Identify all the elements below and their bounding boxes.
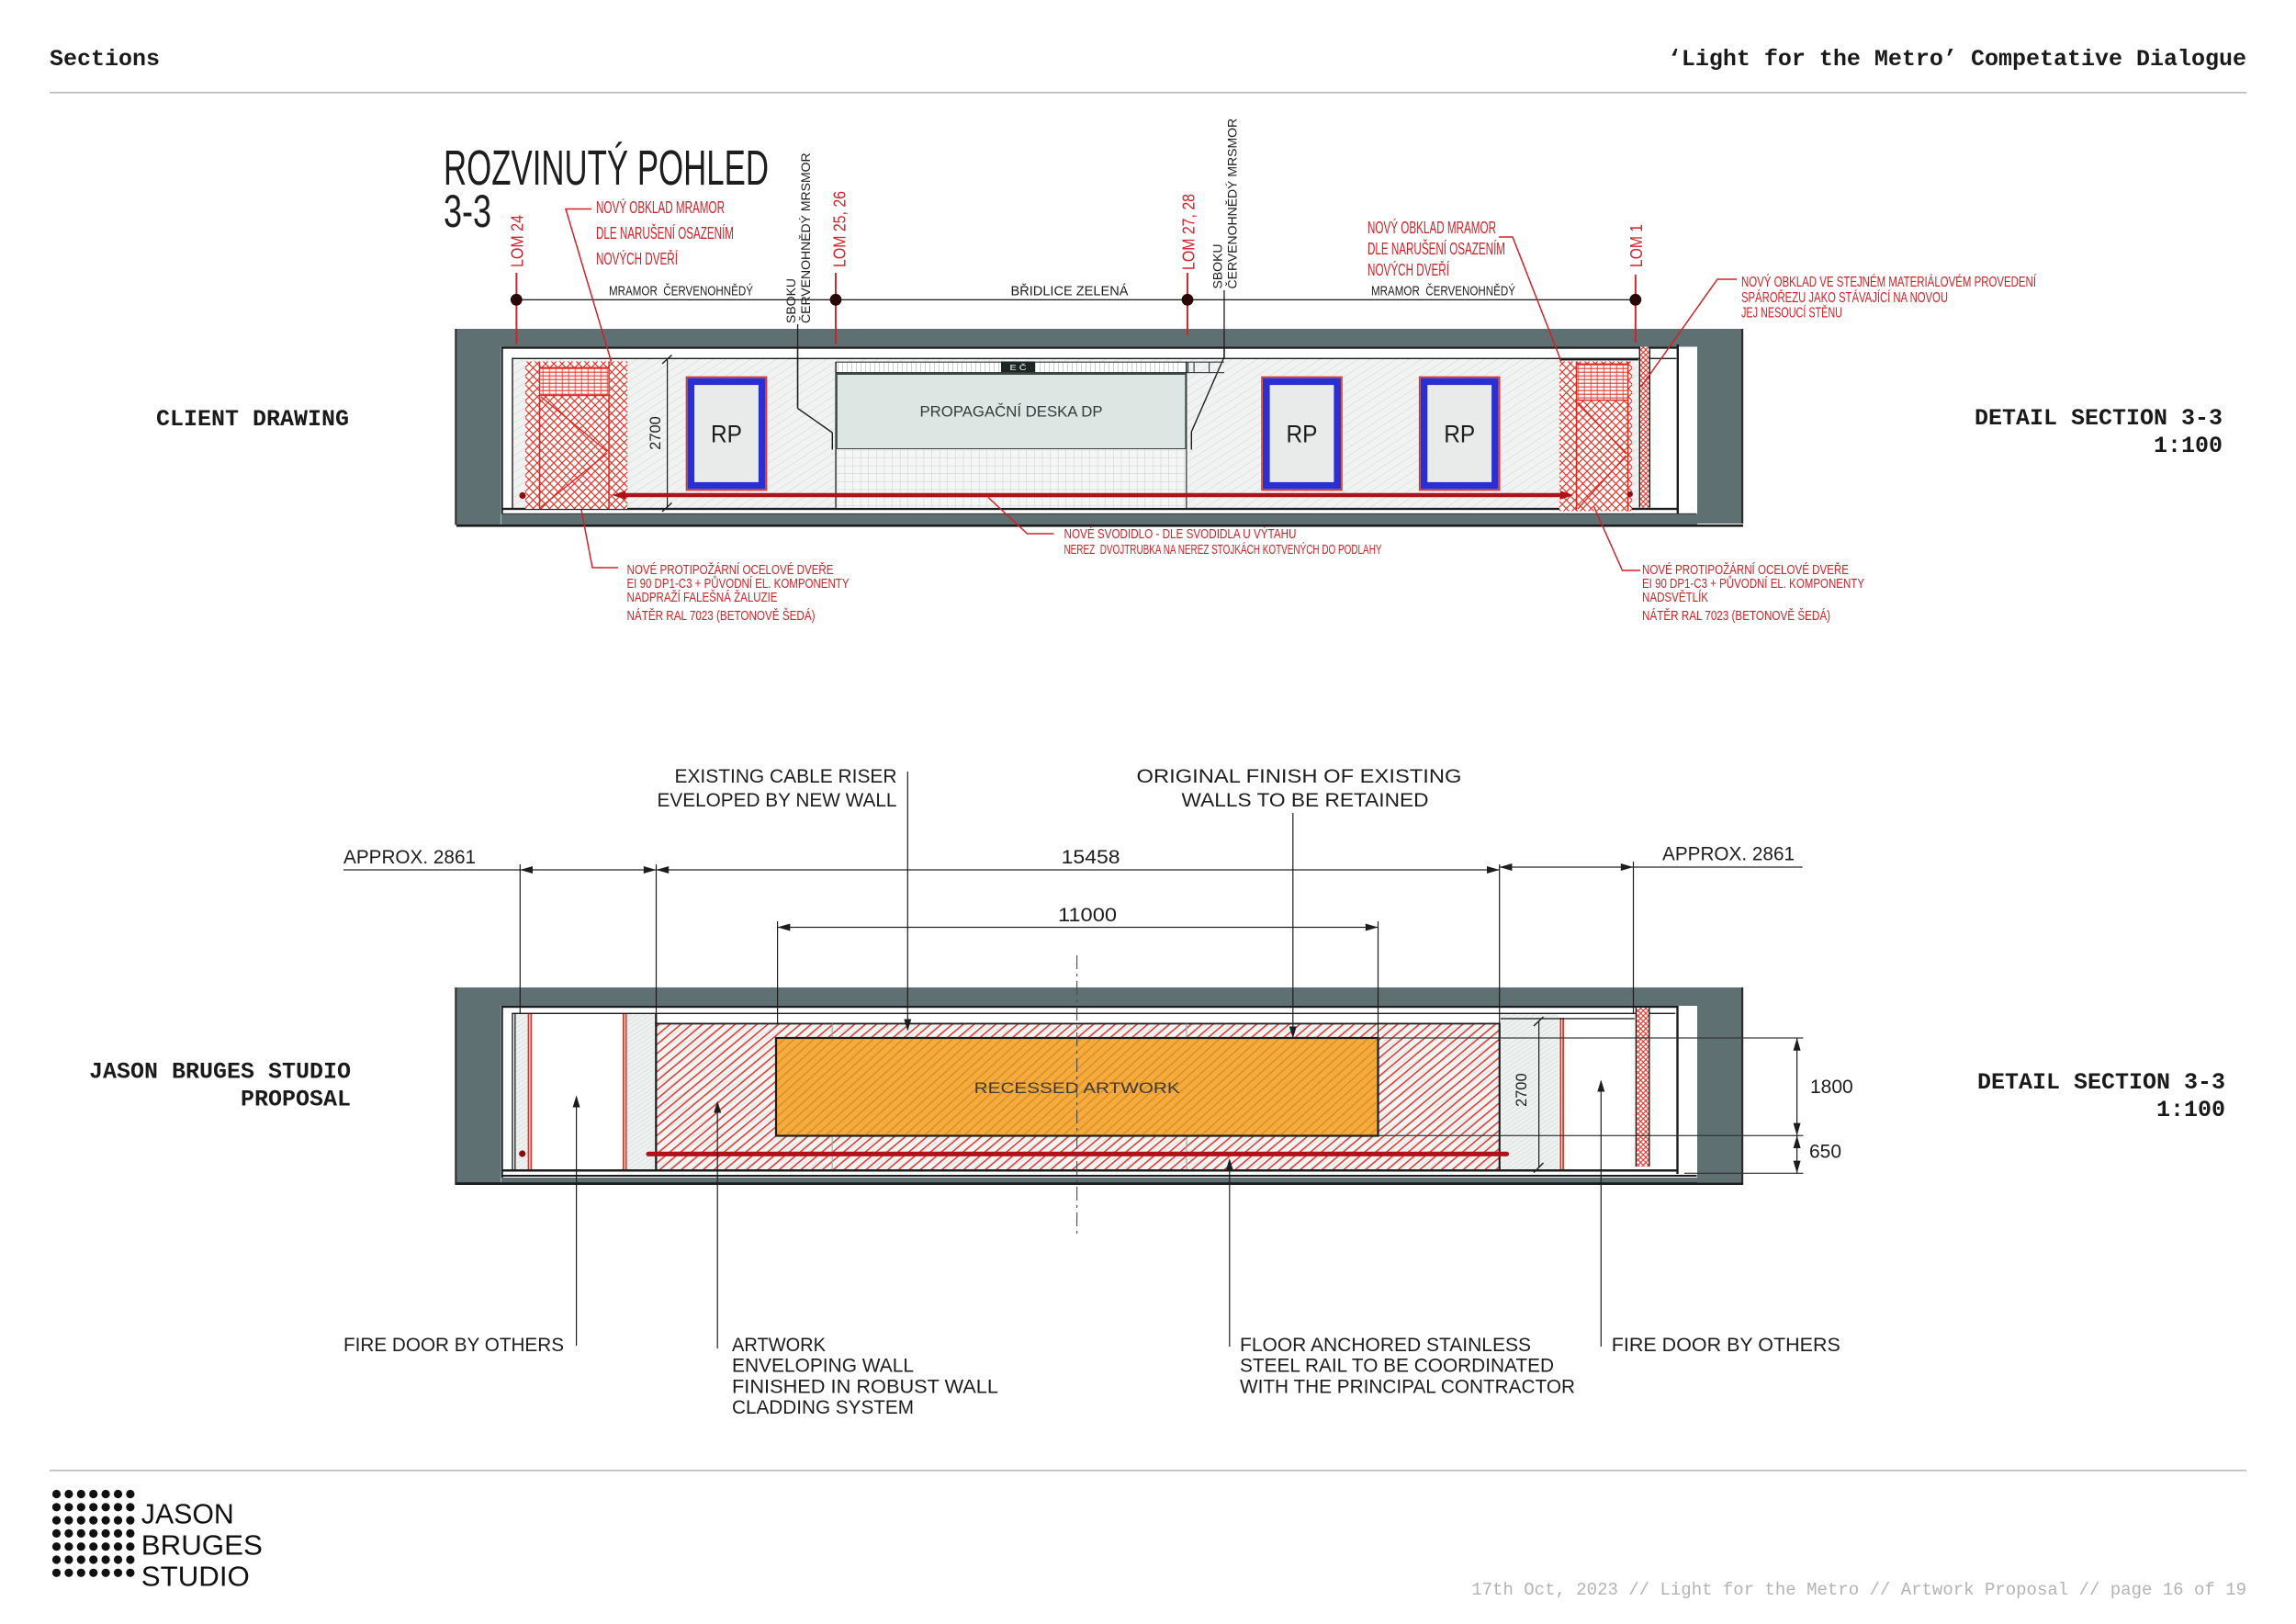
svg-text:NOVÝCH DVEŘÍ: NOVÝCH DVEŘÍ	[1367, 260, 1450, 279]
svg-text:LOM 27, 28: LOM 27, 28	[1179, 194, 1199, 270]
svg-text:NOVÝCH DVEŘÍ: NOVÝCH DVEŘÍ	[596, 249, 679, 268]
svg-text:DLE NARUŠENÍ OSAZENÍM: DLE NARUŠENÍ OSAZENÍM	[596, 223, 734, 242]
svg-text:FIRE DOOR BY OTHERS: FIRE DOOR BY OTHERS	[1612, 1335, 1840, 1356]
svg-text:15458: 15458	[1062, 847, 1120, 868]
svg-text:JASON BRUGES STUDIO: JASON BRUGES STUDIO	[89, 1059, 351, 1086]
svg-text:NOVÝ OBKLAD MRAMOR: NOVÝ OBKLAD MRAMOR	[1367, 218, 1496, 237]
svg-text:ORIGINAL FINISH OF EXISTING: ORIGINAL FINISH OF EXISTING	[1137, 766, 1462, 787]
svg-text:BŘIDLICE ZELENÁ: BŘIDLICE ZELENÁ	[1011, 284, 1129, 299]
svg-text:2700: 2700	[1514, 1073, 1530, 1107]
svg-text:CLADDING SYSTEM: CLADDING SYSTEM	[732, 1397, 914, 1418]
svg-text:RP: RP	[711, 421, 742, 448]
svg-text:2700: 2700	[647, 416, 664, 450]
svg-text:FINISHED IN ROBUST WALL: FINISHED IN ROBUST WALL	[732, 1376, 998, 1397]
svg-text:11000: 11000	[1058, 905, 1117, 926]
svg-text:650: 650	[1809, 1142, 1841, 1163]
svg-text:PROPAGAČNÍ DESKA DP: PROPAGAČNÍ DESKA DP	[920, 403, 1103, 421]
svg-text:NEREZ DVOJTRUBKA NA NEREZ STO: NEREZ DVOJTRUBKA NA NEREZ STOJKÁCH KOTVE…	[1064, 542, 1382, 558]
svg-text:NÁTĚR RAL 7023 (BETONOVĚ ŠEDÁ): NÁTĚR RAL 7023 (BETONOVĚ ŠEDÁ)	[627, 608, 816, 624]
svg-text:SPÁROŘEZU JAKO STÁVAJÍCÍ NA NO: SPÁROŘEZU JAKO STÁVAJÍCÍ NA NOVOU	[1741, 290, 1948, 306]
svg-text:Sections: Sections	[50, 46, 160, 73]
svg-text:DETAIL SECTION 3-3: DETAIL SECTION 3-3	[1977, 1069, 2225, 1096]
svg-text:FLOOR ANCHORED STAINLESS: FLOOR ANCHORED STAINLESS	[1240, 1335, 1531, 1356]
svg-text:1:100: 1:100	[2156, 1097, 2225, 1123]
svg-text:ARTWORK: ARTWORK	[732, 1335, 826, 1356]
svg-text:NOVÉ SVODIDLO - DLE SVODIDLA U: NOVÉ SVODIDLO - DLE SVODIDLA U VÝTAHU	[1064, 526, 1297, 542]
svg-text:NOVÉ PROTIPOŽÁRNÍ OCELOVÉ DVEŘ: NOVÉ PROTIPOŽÁRNÍ OCELOVÉ DVEŘE	[627, 562, 834, 578]
svg-text:RP: RP	[1444, 421, 1475, 448]
svg-text:STEEL RAIL TO BE COORDINATED: STEEL RAIL TO BE COORDINATED	[1240, 1356, 1554, 1377]
svg-text:ČERVENOHNĚDÝ MRSMOR: ČERVENOHNĚDÝ MRSMOR	[798, 152, 813, 323]
svg-text:3-3: 3-3	[444, 186, 491, 237]
svg-text:PROPOSAL: PROPOSAL	[241, 1087, 351, 1113]
svg-text:JASON: JASON	[141, 1498, 234, 1530]
svg-text:FIRE DOOR BY OTHERS: FIRE DOOR BY OTHERS	[343, 1335, 564, 1356]
svg-text:SBOKU: SBOKU	[1210, 243, 1225, 288]
svg-text:APPROX. 2861: APPROX. 2861	[343, 847, 476, 868]
svg-text:EI 90 DP1-C3 + PŮVODNÍ EL. KOM: EI 90 DP1-C3 + PŮVODNÍ EL. KOMPONENTY	[627, 575, 850, 592]
svg-text:ENVELOPING WALL: ENVELOPING WALL	[732, 1356, 914, 1377]
svg-text:LOM 1: LOM 1	[1626, 224, 1646, 267]
svg-text:ROZVINUTÝ POHLED: ROZVINUTÝ POHLED	[444, 141, 769, 196]
svg-text:RP: RP	[1287, 421, 1318, 448]
svg-text:CLIENT DRAWING: CLIENT DRAWING	[156, 406, 349, 433]
svg-text:NÁTĚR RAL 7023 (BETONOVĚ ŠEDÁ): NÁTĚR RAL 7023 (BETONOVĚ ŠEDÁ)	[1642, 608, 1830, 624]
svg-text:E Č: E Č	[1010, 363, 1027, 372]
svg-text:EI 90 DP1-C3 + PŮVODNÍ EL. KOM: EI 90 DP1-C3 + PŮVODNÍ EL. KOMPONENTY	[1642, 575, 1864, 592]
svg-text:SBOKU: SBOKU	[783, 278, 798, 323]
svg-text:NOVÝ OBKLAD VE STEJNÉM MATERIÁ: NOVÝ OBKLAD VE STEJNÉM MATERIÁLOVÉM PROV…	[1741, 275, 2037, 290]
svg-text:NOVÉ PROTIPOŽÁRNÍ OCELOVÉ DVEŘ: NOVÉ PROTIPOŽÁRNÍ OCELOVÉ DVEŘE	[1642, 562, 1849, 578]
svg-text:JEJ NESOUCÍ STĚNU: JEJ NESOUCÍ STĚNU	[1741, 306, 1842, 321]
svg-text:BRUGES: BRUGES	[141, 1529, 263, 1562]
svg-text:DLE NARUŠENÍ OSAZENÍM: DLE NARUŠENÍ OSAZENÍM	[1367, 239, 1505, 258]
svg-text:STUDIO: STUDIO	[141, 1561, 250, 1593]
svg-text:WALLS TO BE RETAINED: WALLS TO BE RETAINED	[1182, 790, 1429, 811]
svg-text:EXISTING CABLE RISER: EXISTING CABLE RISER	[675, 766, 897, 787]
svg-text:MRAMOR ČERVENOHNĚDÝ: MRAMOR ČERVENOHNĚDÝ	[609, 284, 753, 299]
svg-text:EVELOPED BY NEW WALL: EVELOPED BY NEW WALL	[658, 790, 897, 811]
svg-text:1800: 1800	[1810, 1077, 1853, 1098]
svg-text:LOM 25, 26: LOM 25, 26	[830, 191, 850, 267]
svg-text:DETAIL SECTION 3-3: DETAIL SECTION 3-3	[1975, 405, 2223, 432]
svg-text:MRAMOR ČERVENOHNĚDÝ: MRAMOR ČERVENOHNĚDÝ	[1371, 284, 1515, 299]
svg-text:1:100: 1:100	[2154, 433, 2223, 459]
svg-text:LOM 24: LOM 24	[508, 215, 527, 267]
svg-text:‘Light for the Metro’ Competat: ‘Light for the Metro’ Competative Dialog…	[1668, 46, 2246, 73]
svg-text:WITH THE PRINCIPAL CONTRACTOR: WITH THE PRINCIPAL CONTRACTOR	[1240, 1376, 1575, 1397]
svg-text:NADSVĚTLÍK: NADSVĚTLÍK	[1642, 590, 1708, 605]
svg-text:APPROX. 2861: APPROX. 2861	[1662, 844, 1795, 865]
svg-text:NOVÝ OBKLAD MRAMOR: NOVÝ OBKLAD MRAMOR	[596, 197, 725, 217]
svg-text:17th Oct, 2023 // Light for th: 17th Oct, 2023 // Light for the Metro //…	[1471, 1580, 2246, 1600]
svg-text:ČERVENOHNĚDÝ MRSMOR: ČERVENOHNĚDÝ MRSMOR	[1225, 118, 1240, 289]
svg-text:NADPRAŽÍ FALEŠNÁ ŽALUZIE: NADPRAŽÍ FALEŠNÁ ŽALUZIE	[627, 590, 778, 605]
